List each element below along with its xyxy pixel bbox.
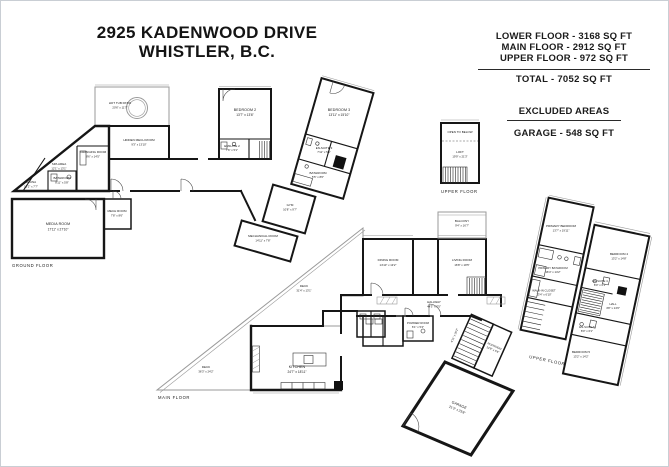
laundry-room xyxy=(363,316,403,346)
ensuite4-dims: 8'0" x 6'1" xyxy=(594,283,606,287)
kitchen-dims: 24'7" x 18'11" xyxy=(287,370,306,374)
kitchen-label: KITCHEN xyxy=(289,365,306,369)
primary-bathroom-dims: 16'4" x 14'2" xyxy=(545,270,560,274)
bathroom-lower-dims: 8'11" x 5'8" xyxy=(55,181,69,185)
main-floor-label: MAIN FLOOR xyxy=(158,395,190,400)
bedroom45-wing xyxy=(563,222,652,386)
stair-hall-dims: 4'11" x 20'2" xyxy=(450,328,460,343)
bedroom4-label: BEDROOM 4 xyxy=(610,252,628,256)
hidden-mech-dims: 9'3" x 13'10" xyxy=(131,143,146,147)
kitchen-fireplace xyxy=(253,346,260,372)
balcony-dims: 9'4" x 16'7" xyxy=(455,224,469,228)
powder-room-dims: 6'1" x 5'4" xyxy=(412,325,424,329)
media-room-label: MEDIA ROOM xyxy=(46,222,70,226)
upper-floor-box-label: UPPER FLOOR xyxy=(441,189,478,194)
mech-room-label: MECH ROOM xyxy=(108,209,128,213)
bedroom3-label: BEDROOM 3 xyxy=(328,108,350,112)
floor-plan-page: 2925 KADENWOOD DRIVE WHISTLER, B.C. LOWE… xyxy=(0,0,669,467)
kitchen-counter xyxy=(281,381,343,390)
ground-floor-walls xyxy=(12,89,271,258)
garage-label-group: GARAGE 21'3" x 23'8" xyxy=(448,400,468,415)
walk-in-closet-dims: 13'4" x 6'10" xyxy=(536,293,551,297)
ensuite5-dims: 8'0" x 6'1" xyxy=(581,329,593,333)
sauna-label: SAUNA xyxy=(26,180,36,184)
dining-room-label: DINING ROOM xyxy=(378,258,399,262)
ensuite2-dims: 7'6" x 5'1" xyxy=(226,148,238,152)
living-room-dims: 16'8" x 19'5" xyxy=(454,263,469,267)
sauna-dims: 10'2" x 7'7" xyxy=(24,185,38,189)
wing-stairs xyxy=(578,290,604,316)
loft-dims: 19'9" x 21'3" xyxy=(452,155,467,159)
hidden-mech-label: HIDDEN MECH ROOM xyxy=(123,138,155,142)
media-room-dims: 17'11" x 27'10" xyxy=(48,228,69,232)
room-labels: HOT TUB PATIO 20'6" x 11'7" HIDDEN MECH … xyxy=(24,101,628,415)
bedroom5-label: BEDROOM 5 xyxy=(572,350,590,354)
gym-label: GYM xyxy=(287,203,294,207)
main-floor-plan: MUDROOM 14'8" x 5'6" 4'11" x 20'2" xyxy=(157,212,513,455)
ensuite3-dims: 7'11" x 5'1" xyxy=(317,150,331,154)
hot-tub-patio-outline xyxy=(95,85,169,126)
bedroom2-dims: 13'7" x 13'6" xyxy=(236,113,253,117)
bathroom-lower-label: BATHROOM xyxy=(53,176,71,180)
hot-tub-patio-dims: 20'6" x 11'7" xyxy=(112,106,127,110)
primary-bedroom-dims: 13'7" x 19'11" xyxy=(553,229,570,233)
spa-area-dims: 12'1" x 13'1" xyxy=(51,167,66,171)
hallway-label: HALLWAY xyxy=(427,300,441,304)
upper-floor-wing-label: UPPER FLOOR xyxy=(529,354,566,367)
ground-floor-label: GROUND FLOOR xyxy=(12,263,53,268)
deck-lower-label: DECK xyxy=(202,365,210,369)
balcony-label: BALCONY xyxy=(455,219,469,223)
deck-upper-dims: 31'4" x 13'1" xyxy=(296,289,311,293)
hall-dims: 4'8" x 14'6" xyxy=(606,306,620,310)
hot-tub-patio-label: HOT TUB PATIO xyxy=(109,101,132,105)
bedroom3-dims: 13'11" x 15'10" xyxy=(329,113,350,117)
deck-upper-label: DECK xyxy=(300,284,308,288)
bedroom3-wing xyxy=(291,76,374,199)
bedroom2-stairs xyxy=(260,141,270,159)
gym-dims: 10'8" x 9'7" xyxy=(283,208,297,212)
hallway-mats xyxy=(377,297,505,304)
bedroom2-label: BEDROOM 2 xyxy=(234,108,256,112)
mechanical-room-dims: 14'11" x 7'8" xyxy=(255,239,270,243)
bedroom4-dims: 13'2" x 14'8" xyxy=(611,257,626,261)
living-room-label: LIVING ROOM xyxy=(452,258,473,262)
loft-label: LOFT xyxy=(456,150,464,154)
primary-bedroom-label: PRIMARY BEDROOM xyxy=(546,224,576,228)
door-arcs xyxy=(85,89,441,316)
living-room-stairs xyxy=(467,277,486,295)
deck-lower-dims: 36'3" x 24'2" xyxy=(198,370,213,374)
changing-room-dims: 8'6" x 14'5" xyxy=(86,155,100,159)
mechanical-room-label: MECHANICAL ROOM xyxy=(248,234,278,238)
loft-stairs xyxy=(443,167,467,183)
spa-area-label: SPA AREA xyxy=(52,162,66,166)
hallway-dims: 44'3" x 7'5" xyxy=(427,305,441,309)
dining-room-dims: 14'10" x 13'2" xyxy=(380,263,397,267)
bathroom-wing-dims: 5'5" x 8'0" xyxy=(312,175,324,179)
open-to-below-label: OPEN TO BELOW xyxy=(447,130,472,134)
mech-room-dims: 7'8" x 8'6" xyxy=(111,214,123,218)
bedroom5-dims: 13'2" x 14'2" xyxy=(573,355,588,359)
floor-plan-drawing: MUDROOM 14'8" x 5'6" 4'11" x 20'2" xyxy=(1,1,669,467)
changing-room-label: CHANGING ROOM xyxy=(80,150,107,154)
